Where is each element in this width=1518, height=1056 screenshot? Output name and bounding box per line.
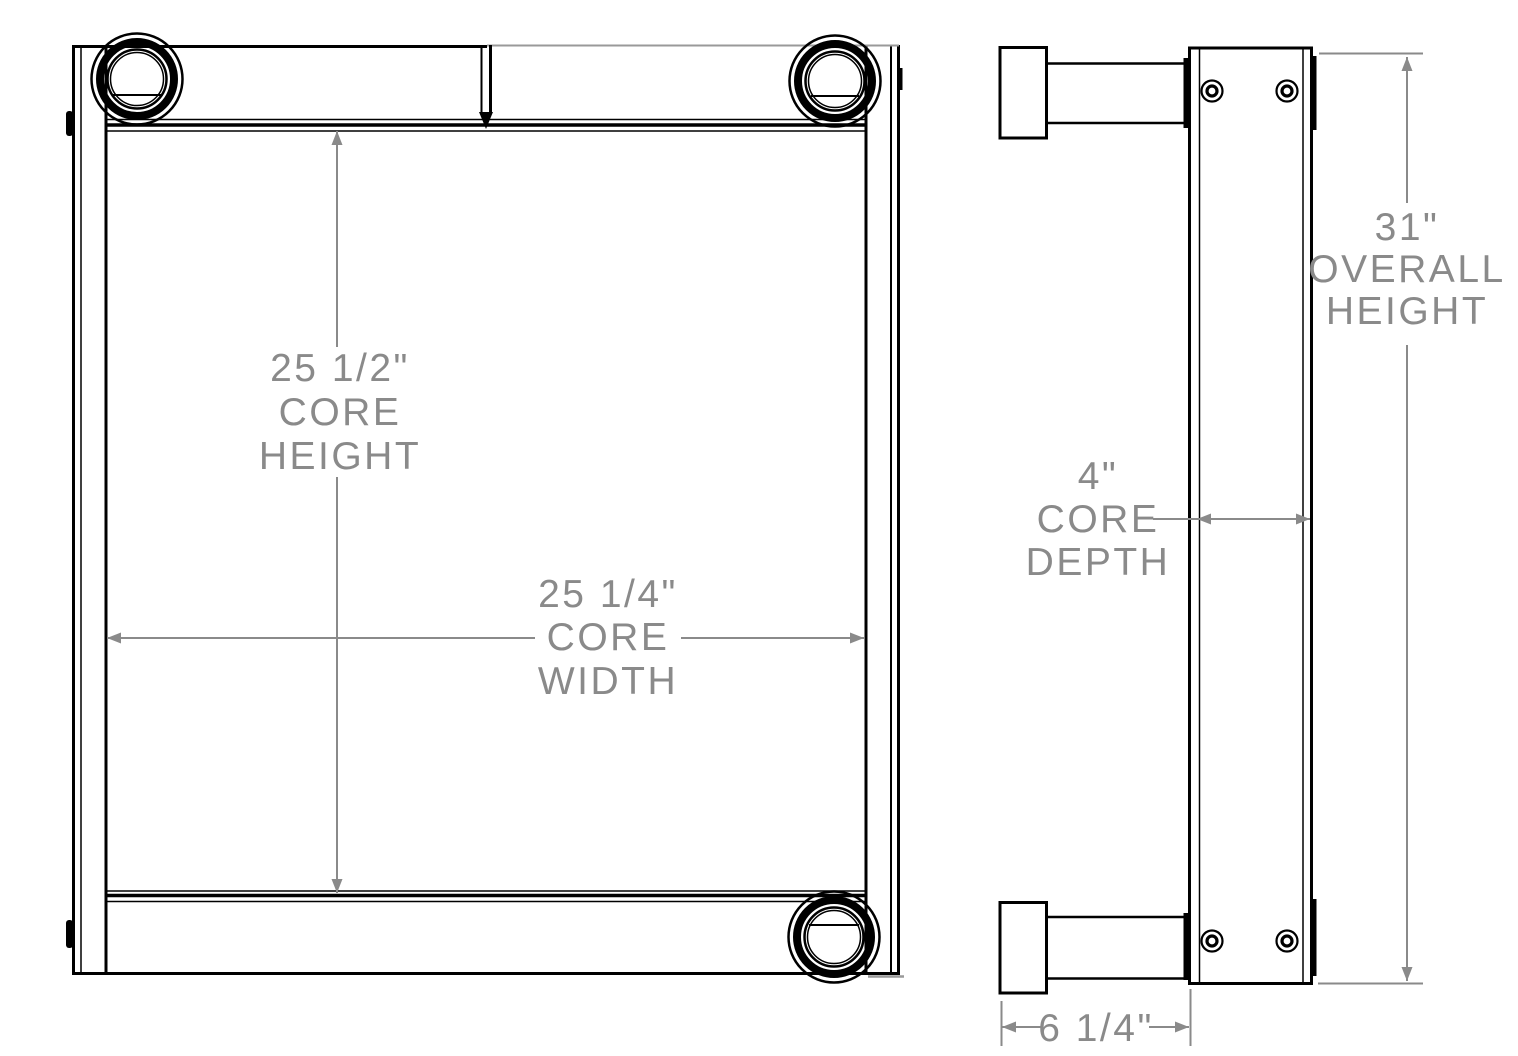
dimension-overall-height: 31" OVERALL HEIGHT bbox=[1308, 54, 1505, 984]
top-tank bbox=[106, 45, 866, 131]
core-depth-label-1: CORE bbox=[1037, 498, 1160, 541]
side-view: 4" CORE DEPTH 31" OVERALL HEIGHT bbox=[1000, 48, 1506, 1051]
tank-split-seam bbox=[479, 45, 493, 129]
right-tick-top bbox=[898, 68, 903, 90]
tank-edge-bottom-left bbox=[1184, 913, 1191, 980]
core-width-label-1: CORE bbox=[547, 616, 670, 659]
left-tab-bottom bbox=[66, 920, 73, 948]
screw-bottom-right bbox=[1277, 931, 1298, 952]
overall-height-label-2: HEIGHT bbox=[1326, 290, 1488, 333]
left-tab-top bbox=[66, 111, 73, 136]
core-height-label-2: HEIGHT bbox=[259, 435, 421, 478]
screw-bottom-left bbox=[1202, 931, 1223, 952]
technical-drawing: 25 1/2" CORE HEIGHT 25 1/4" CORE WIDTH bbox=[0, 0, 1518, 1056]
overall-height-label-1: OVERALL bbox=[1308, 248, 1505, 291]
drawing-sheet: 25 1/2" CORE HEIGHT 25 1/4" CORE WIDTH bbox=[0, 0, 1518, 1056]
core-width-label-2: WIDTH bbox=[538, 660, 678, 703]
front-view: 25 1/2" CORE HEIGHT 25 1/4" CORE WIDTH bbox=[66, 34, 904, 983]
overall-height-value: 31" bbox=[1375, 206, 1440, 249]
dimension-core-height: 25 1/2" CORE HEIGHT bbox=[259, 131, 421, 893]
core-height-value: 25 1/2" bbox=[270, 347, 410, 390]
core-depth-label-2: DEPTH bbox=[1026, 541, 1171, 584]
tank-edge-top-left bbox=[1184, 58, 1191, 128]
dimension-core-depth: 4" CORE DEPTH bbox=[1026, 455, 1310, 584]
core-height-label-1: CORE bbox=[279, 391, 402, 434]
fitting-top bbox=[1000, 48, 1189, 139]
fitting-bottom bbox=[1000, 903, 1189, 994]
core-depth-value: 4" bbox=[1078, 455, 1119, 498]
dimension-overall-depth: 6 1/4" bbox=[1002, 989, 1191, 1050]
tank-edge-bottom-right bbox=[1311, 899, 1317, 976]
bottom-tank bbox=[106, 891, 866, 902]
overall-depth-value: 6 1/4" bbox=[1038, 1007, 1154, 1050]
front-frame bbox=[66, 45, 904, 977]
screw-top-left bbox=[1202, 81, 1223, 102]
core-width-value: 25 1/4" bbox=[538, 573, 678, 616]
tank-edge-top-right bbox=[1311, 56, 1317, 130]
screw-top-right bbox=[1277, 81, 1298, 102]
dimension-core-width: 25 1/4" CORE WIDTH bbox=[107, 573, 864, 703]
